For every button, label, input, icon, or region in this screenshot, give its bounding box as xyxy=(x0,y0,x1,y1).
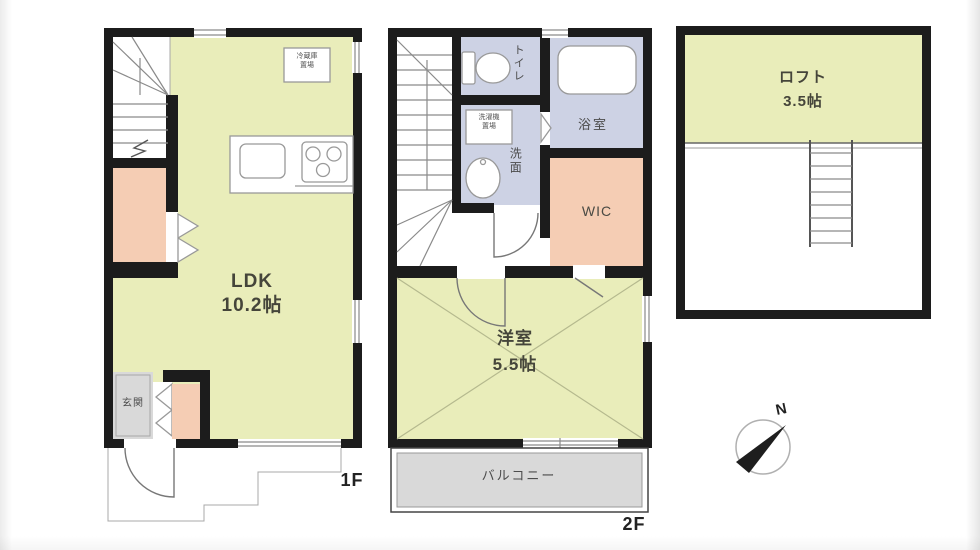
bedroom-label: 洋室 xyxy=(445,330,585,349)
entrance-closet xyxy=(172,384,200,439)
floorplan-image: LDK 10.2帖 玄関 冷蔵庫 置場 1F トイレ 洗面 洗濯機 置場 浴室 … xyxy=(0,0,980,550)
floor1-closet xyxy=(113,166,170,264)
bathtub-icon xyxy=(558,46,636,94)
balcony-label: バルコニー xyxy=(429,469,609,483)
loft-size-label: 3.5帖 xyxy=(736,94,870,111)
entrance-label: 玄関 xyxy=(112,398,154,409)
floor1-stairs-area xyxy=(113,37,170,160)
ldk-label: LDK xyxy=(174,272,330,293)
bedroom-size-label: 5.5帖 xyxy=(445,356,585,375)
washbasin-icon xyxy=(466,158,500,198)
wic-label: WIC xyxy=(562,204,632,219)
toilet-icon xyxy=(462,52,510,84)
ldk-size-label: 10.2帖 xyxy=(174,296,330,317)
loft-room xyxy=(685,35,922,143)
washer-space-label: 洗濯機 置場 xyxy=(466,114,512,132)
floor2-label: 2F xyxy=(612,515,656,535)
floor1-label: 1F xyxy=(330,471,374,491)
loft-label: ロフト xyxy=(736,70,870,87)
kitchen-sink xyxy=(240,144,285,178)
washroom-label: 洗面 xyxy=(508,147,521,175)
compass-icon xyxy=(736,420,790,474)
floor2-plan xyxy=(388,27,653,512)
kitchen-counter xyxy=(230,136,353,193)
bath-label: 浴室 xyxy=(558,118,628,132)
fridge-space-label: 冷蔵庫 置場 xyxy=(284,53,330,71)
porch-outline xyxy=(108,448,341,521)
north-needle xyxy=(736,425,786,473)
entrance-bifold-door-icon xyxy=(153,382,172,439)
toilet-label: トイレ xyxy=(512,44,524,83)
entrance-door-arc xyxy=(125,448,174,497)
